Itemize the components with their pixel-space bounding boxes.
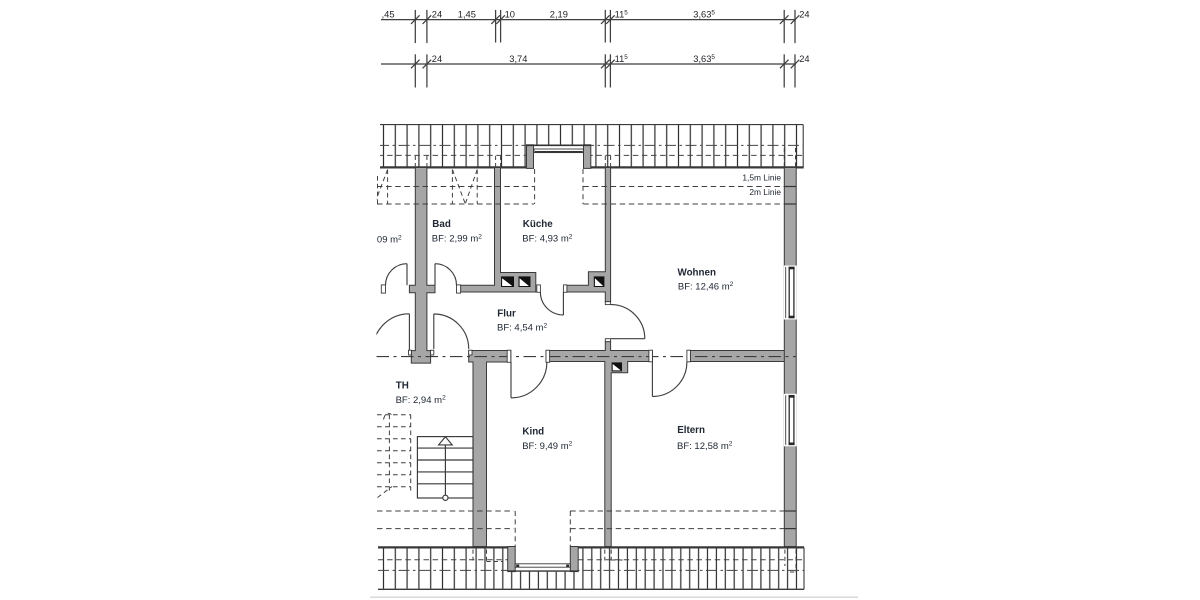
svg-text:3,74: 3,74	[509, 54, 527, 64]
svg-text:,45: ,45	[382, 9, 395, 19]
svg-text:1,5m Linie: 1,5m Linie	[742, 173, 781, 183]
svg-text:Wohnen: Wohnen	[678, 267, 716, 278]
svg-text:24: 24	[799, 54, 809, 64]
svg-text:BF: 4,54 m2: BF: 4,54 m2	[497, 322, 547, 333]
svg-text:Bad: Bad	[432, 219, 451, 230]
svg-text:10: 10	[505, 9, 515, 19]
svg-text:24: 24	[432, 9, 442, 19]
svg-text:24: 24	[432, 54, 442, 64]
svg-text:Eltern: Eltern	[677, 425, 705, 436]
svg-text:Kind: Kind	[522, 426, 544, 437]
svg-text:BF: 2,99 m2: BF: 2,99 m2	[432, 233, 482, 244]
svg-text:BF: 4,93 m2: BF: 4,93 m2	[522, 233, 572, 244]
svg-text:Küche: Küche	[523, 219, 553, 230]
svg-text:1,45: 1,45	[458, 9, 476, 19]
svg-text:BF: 2,94 m2: BF: 2,94 m2	[396, 395, 446, 406]
svg-text:BF: 12,58 m2: BF: 12,58 m2	[677, 441, 733, 452]
svg-text:2m Linie: 2m Linie	[749, 187, 781, 197]
svg-text:Flur: Flur	[497, 309, 516, 320]
svg-text:2,19: 2,19	[550, 9, 568, 19]
svg-text:BF: 12,46 m2: BF: 12,46 m2	[678, 281, 734, 292]
svg-text:24: 24	[799, 9, 809, 19]
svg-text:TH: TH	[396, 381, 409, 392]
svg-text:BF: 9,49 m2: BF: 9,49 m2	[522, 441, 572, 452]
